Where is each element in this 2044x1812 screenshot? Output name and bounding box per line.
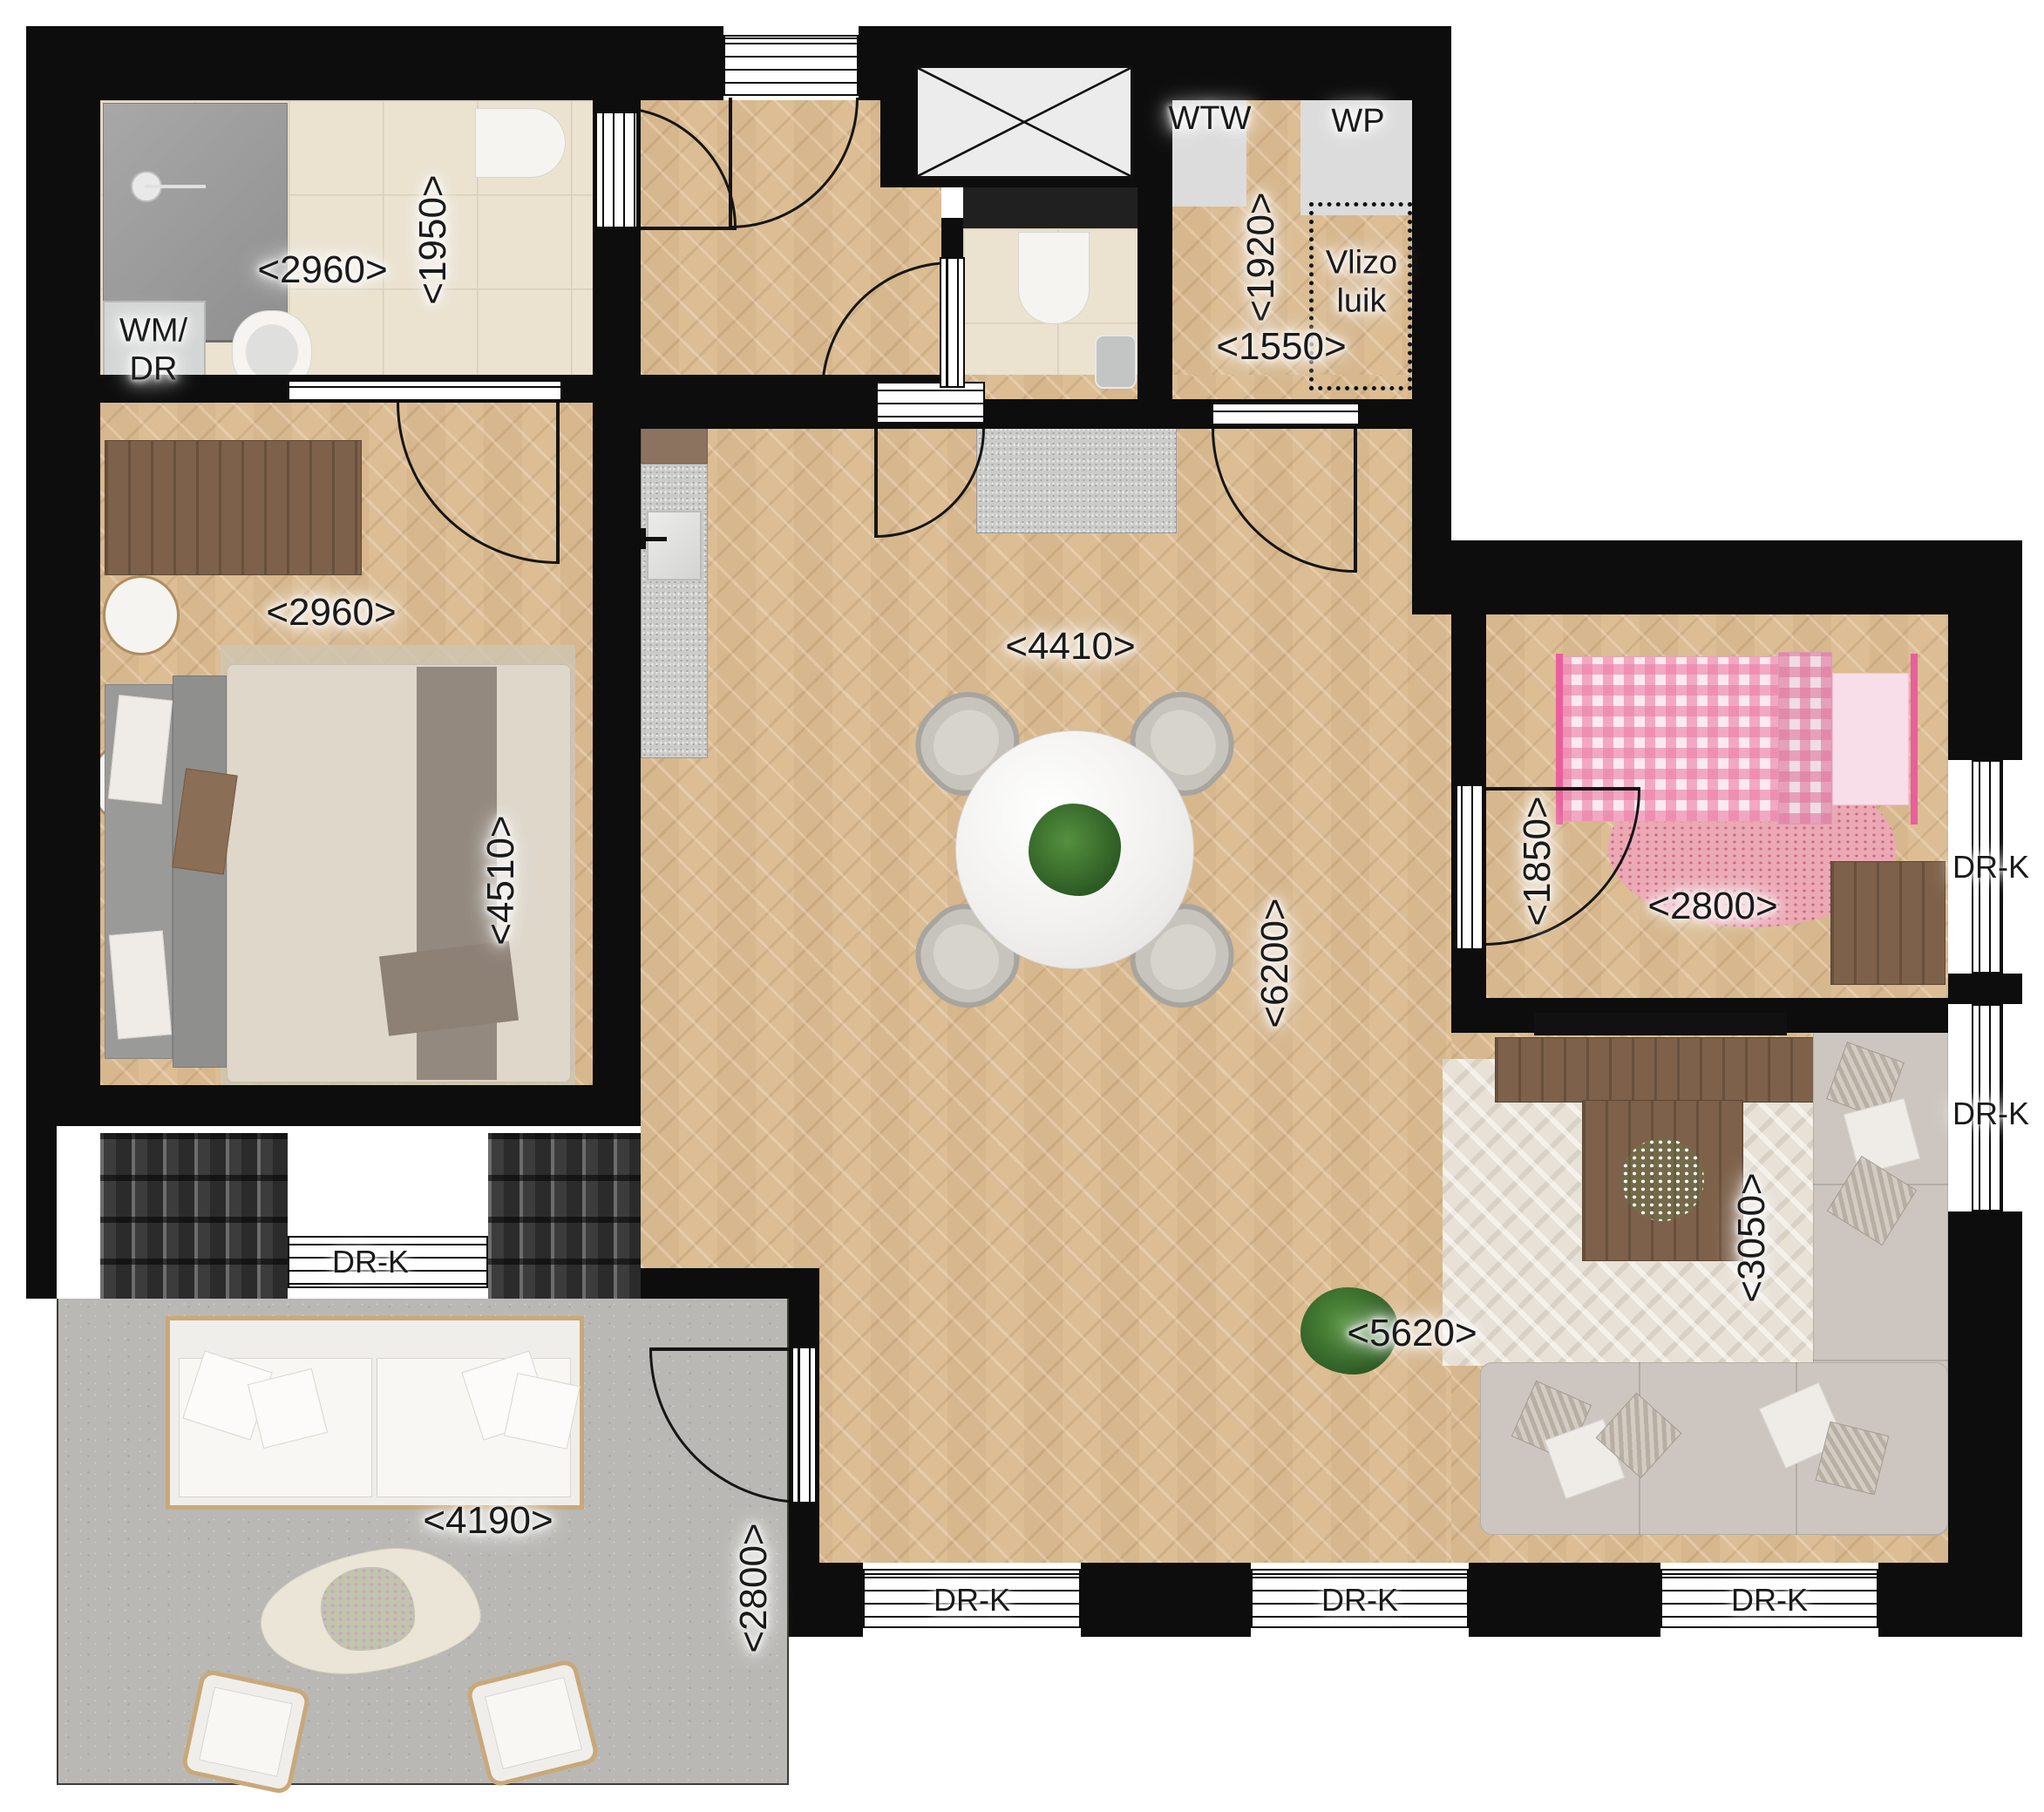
wall xyxy=(26,100,100,1126)
wall xyxy=(26,26,723,100)
dresser xyxy=(105,440,362,575)
door-leaf xyxy=(1354,429,1357,573)
door-leaf xyxy=(649,1347,804,1351)
outdoor-pillow xyxy=(504,1373,581,1449)
tv-console xyxy=(1495,1037,1822,1103)
wall xyxy=(941,399,1451,429)
kitchen-sink xyxy=(647,511,702,580)
bed-pillow xyxy=(109,931,172,1040)
dimension-label: <1920> xyxy=(1239,192,1283,322)
sofa-seam xyxy=(1813,1360,1948,1361)
window-type-label: DR-K xyxy=(1731,1582,1808,1619)
kitchen-island xyxy=(976,424,1177,533)
window-type-label: DR-K xyxy=(332,1244,409,1280)
window-type-label: DR-K xyxy=(934,1582,1010,1619)
wc-door-frame xyxy=(940,257,965,388)
bathroom-door-window xyxy=(288,378,562,401)
wall xyxy=(641,1268,789,1299)
kitchen-faucet-icon xyxy=(641,528,646,549)
toilet xyxy=(475,108,566,178)
dimension-label: <1950> xyxy=(411,174,455,304)
kids-bed-frame xyxy=(1911,654,1918,825)
floor-plan: <2960><1950><1920><1550><2960><4510><441… xyxy=(0,0,2044,1812)
entrance-door-frame xyxy=(723,35,859,96)
wall xyxy=(1878,1563,2022,1637)
wall xyxy=(100,1085,641,1126)
wall xyxy=(1948,974,2022,1004)
shower-arm-icon xyxy=(145,185,206,188)
door-leaf xyxy=(556,403,560,564)
dimension-label: <2960> xyxy=(266,591,396,635)
dimension-label: <5620> xyxy=(1347,1312,1477,1355)
kids-bed-blanket-fold xyxy=(1778,652,1832,825)
tech-door-frame xyxy=(1212,403,1360,427)
dimension-label: <1550> xyxy=(1216,325,1346,369)
dimension-label: <1850> xyxy=(1516,796,1559,926)
window-type-label: DR-K xyxy=(1952,849,2029,886)
wc-toilet xyxy=(1018,232,1090,324)
coffee-table-flowers xyxy=(1621,1138,1704,1221)
nightstand xyxy=(1830,861,1946,985)
dimension-label: <3050> xyxy=(1730,1172,1774,1302)
wall xyxy=(1412,100,1451,614)
washer-dryer-label: WM/ DR xyxy=(119,312,187,388)
hall-living-door-frame xyxy=(876,382,985,424)
loft-hatch-label: Vlizo luik xyxy=(1326,244,1397,320)
door-leaf xyxy=(874,429,878,538)
bathroom-hall-door-frame xyxy=(595,112,638,228)
roof-tiles xyxy=(488,1133,641,1299)
wall xyxy=(1451,540,1948,614)
shaft xyxy=(915,65,1133,179)
dimension-label: <4190> xyxy=(423,1499,553,1543)
kids-bed-pillow xyxy=(1832,673,1909,805)
kitchen-counter xyxy=(641,464,708,758)
outdoor-table-flowers xyxy=(321,1567,415,1651)
terrace-door-frame xyxy=(791,1347,817,1503)
door-leaf xyxy=(1484,787,1640,791)
dimension-label: <6200> xyxy=(1253,898,1297,1028)
dimension-label: <2960> xyxy=(257,248,387,292)
kids-door-frame xyxy=(1454,784,1484,950)
window-type-label: DR-K xyxy=(1321,1582,1398,1619)
washbasin-bowl xyxy=(246,324,298,380)
wall xyxy=(1948,540,2022,760)
bed-throw xyxy=(379,940,519,1036)
wc-shaft-band xyxy=(963,187,1137,228)
table-plant xyxy=(1029,804,1121,896)
dimension-label: <4410> xyxy=(1005,625,1135,668)
heat-pump-label: WP xyxy=(1331,103,1384,141)
outdoor-chair-cushion xyxy=(199,1686,293,1776)
dimension-label: <2800> xyxy=(732,1523,776,1653)
bed-pillow xyxy=(108,695,173,804)
wall xyxy=(1137,100,1172,401)
dimension-label: <4510> xyxy=(479,815,523,945)
wall xyxy=(26,1126,57,1299)
wall xyxy=(593,100,641,1126)
roof-tiles xyxy=(100,1133,288,1299)
wall xyxy=(789,1563,863,1637)
dimension-label: <2800> xyxy=(1647,885,1777,928)
wall xyxy=(1469,1563,1660,1637)
window-type-label: DR-K xyxy=(1952,1096,2029,1132)
wc-sink xyxy=(1095,335,1137,389)
heat-recovery-unit-label: WTW xyxy=(1169,100,1252,139)
tv xyxy=(1534,1013,1787,1035)
side-table xyxy=(103,575,180,655)
wall xyxy=(1081,1563,1251,1637)
